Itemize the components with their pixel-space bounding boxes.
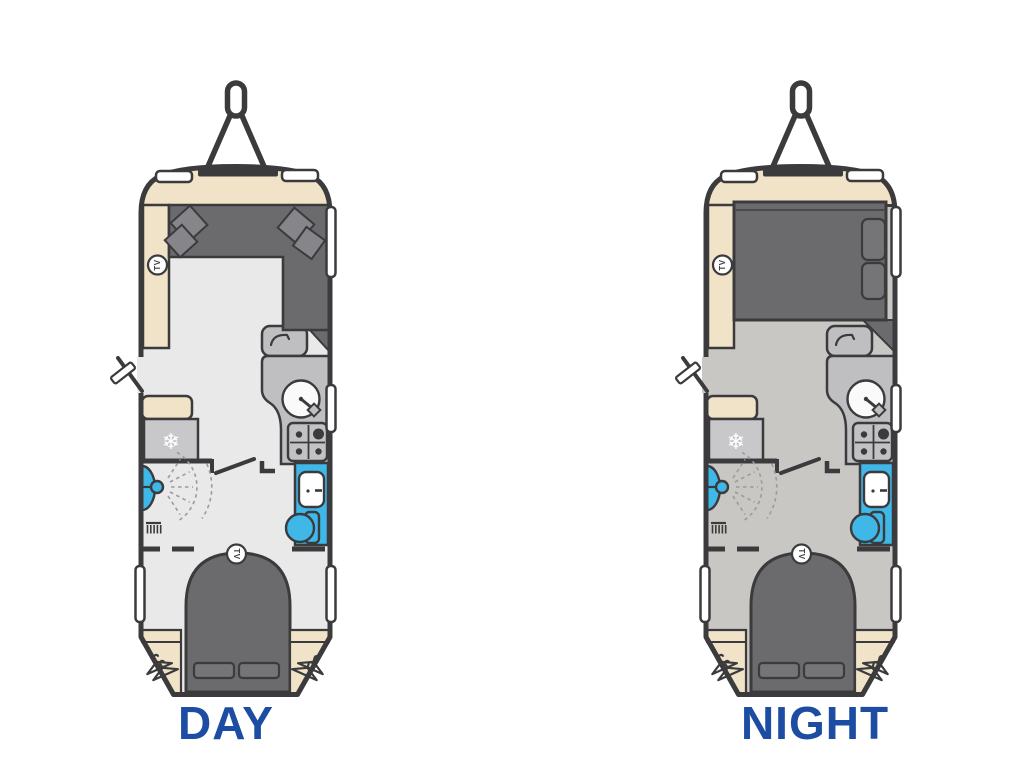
bed-pillow [862, 219, 885, 260]
floorplan-day: ❄ [90, 60, 390, 720]
floorplan-night [655, 60, 955, 720]
front-double-bed [734, 202, 886, 320]
night-label: NIGHT [665, 700, 965, 746]
bed-pillow [862, 263, 885, 299]
day-label: DAY [76, 700, 376, 746]
